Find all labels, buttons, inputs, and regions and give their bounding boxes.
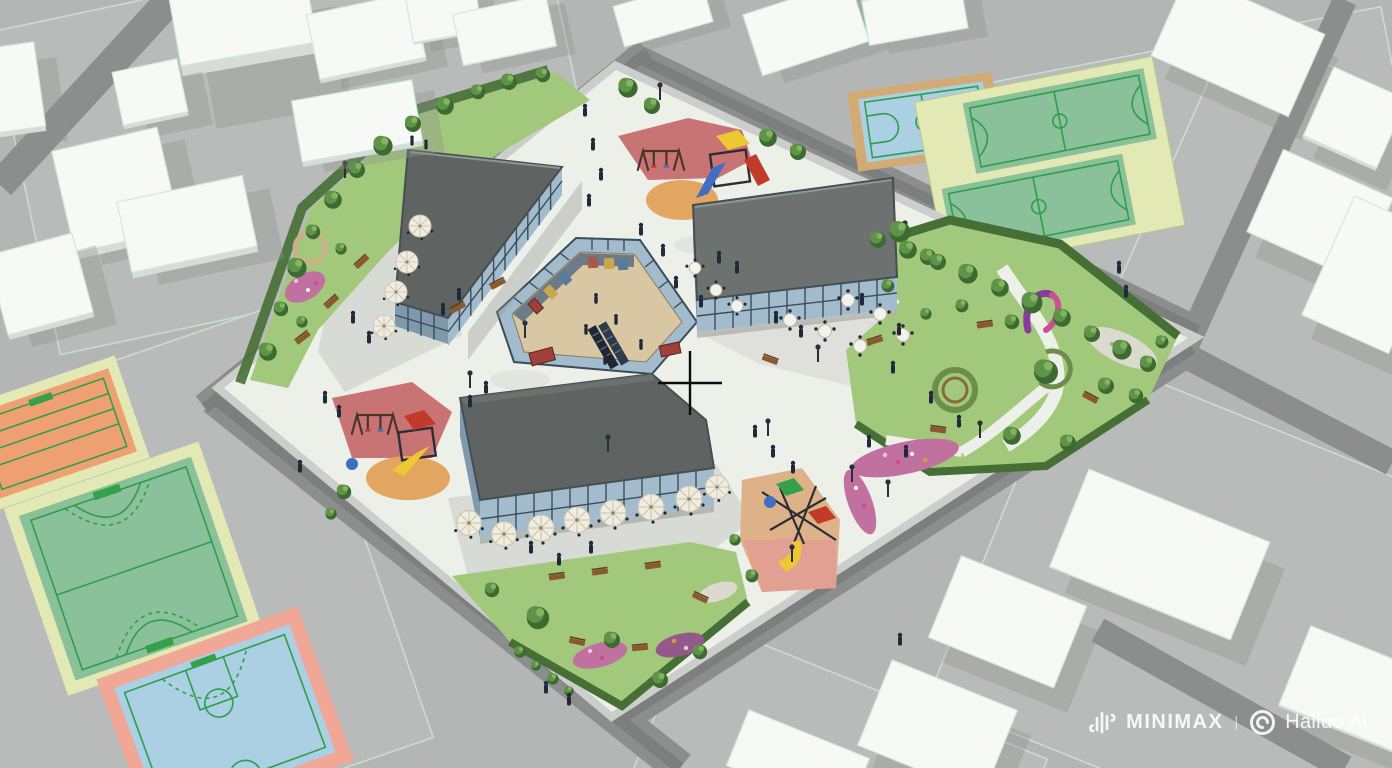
hailuo-swirl-icon — [1249, 709, 1276, 736]
render-canvas — [0, 0, 1392, 768]
audio-waveform-icon — [1087, 709, 1117, 736]
watermark: MINIMAX | Hailuo AI — [1087, 709, 1368, 736]
architectural-render: MINIMAX | Hailuo AI — [0, 0, 1392, 768]
watermark-product: Hailuo AI — [1285, 711, 1368, 734]
glass-pavilion-northeast — [693, 178, 897, 338]
watermark-brand: MINIMAX — [1126, 711, 1223, 734]
watermark-separator: | — [1234, 714, 1238, 731]
